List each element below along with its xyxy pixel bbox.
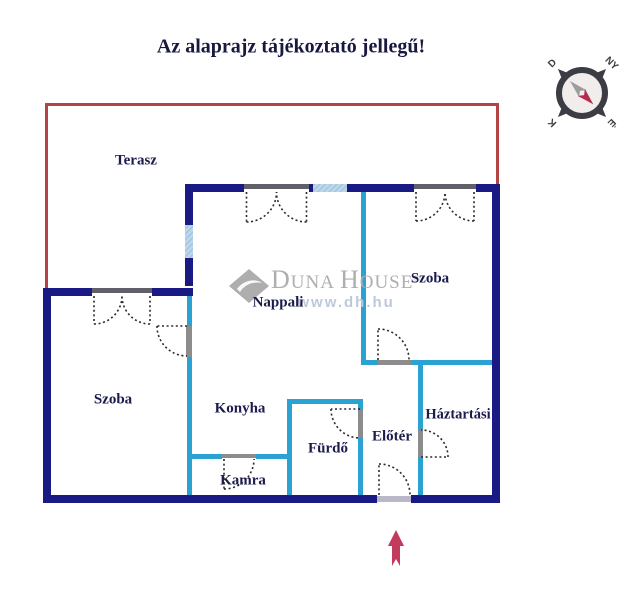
room-label-szoba-bal: Szoba	[94, 392, 132, 409]
compass-label-d: D	[546, 57, 559, 70]
door-swing-arcs	[94, 192, 474, 495]
page-title: Az alaprajz tájékoztató jellegű!	[157, 36, 425, 59]
room-label-nappali: Nappali	[253, 295, 304, 312]
room-label-eloter: Előtér	[372, 429, 412, 446]
compass-label-e: É	[605, 116, 619, 130]
watermark-brand: DUNA HOUSE®	[271, 267, 421, 293]
watermark-url: www.dh.hu	[297, 294, 394, 311]
floor-plan-page: Az alaprajz tájékoztató jellegű!	[0, 0, 640, 591]
room-label-furdo: Fürdő	[308, 441, 348, 458]
compass-icon: NY É K D	[546, 55, 621, 130]
window-top	[313, 184, 347, 192]
compass-label-k: K	[546, 115, 559, 128]
room-label-konyha: Konyha	[215, 401, 266, 418]
windows	[185, 184, 347, 258]
window-left	[185, 225, 193, 258]
room-label-szoba-jobb: Szoba	[411, 271, 449, 288]
room-label-terasz: Terasz	[115, 153, 157, 170]
entrance-arrow-icon	[388, 530, 404, 566]
room-label-kamra: Kamra	[220, 473, 266, 490]
terrace-outline	[47, 105, 498, 289]
room-label-haztartasi: Háztartási	[425, 407, 490, 424]
